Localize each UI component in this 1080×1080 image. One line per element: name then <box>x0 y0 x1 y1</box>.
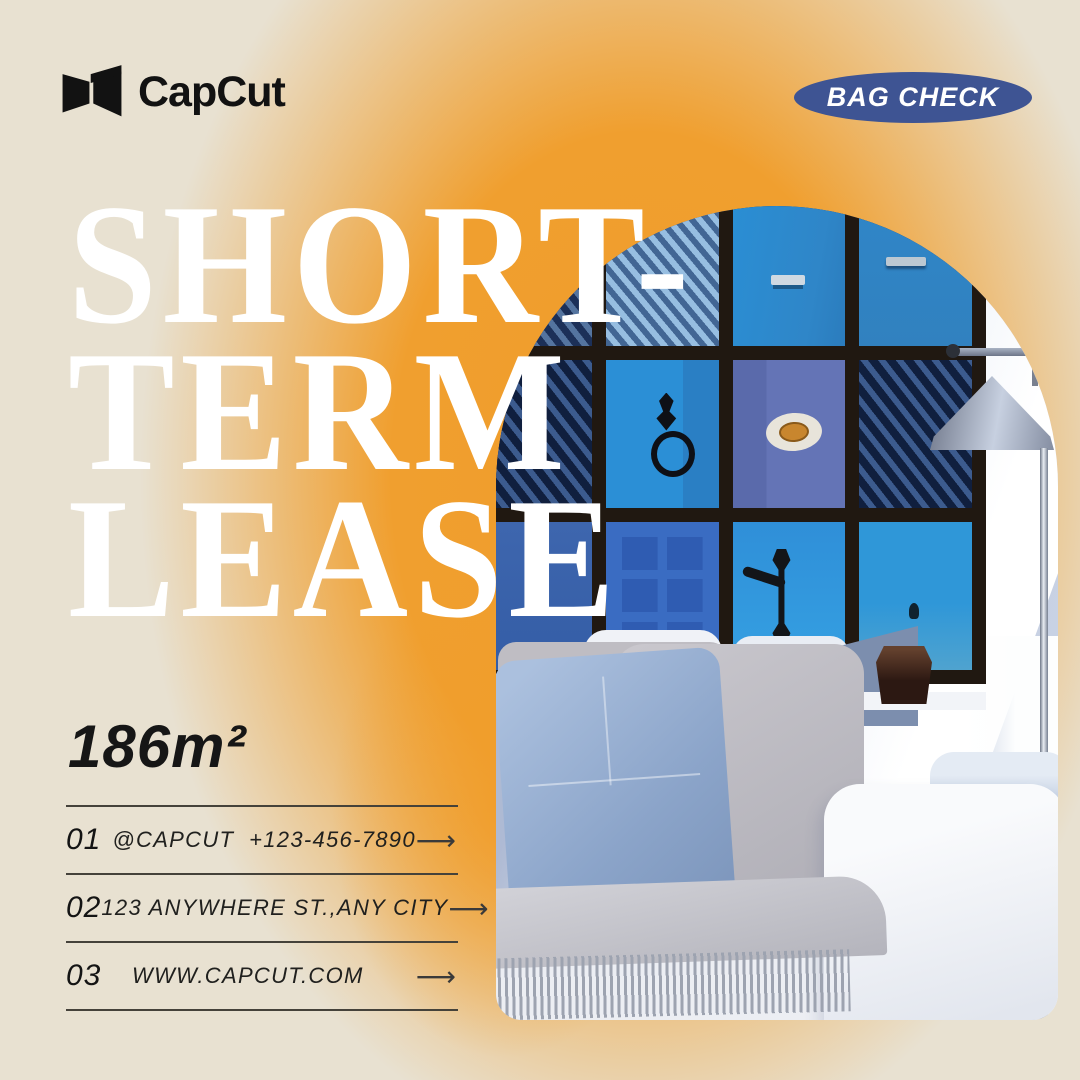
brand-name: CapCut <box>138 68 285 117</box>
headline: SHORT- TERM LEASE <box>68 192 695 633</box>
floor-lamp-counterweight <box>946 344 960 358</box>
door-tile <box>733 206 846 346</box>
brass-escutcheon <box>765 411 824 453</box>
capcut-logo[interactable]: CapCut <box>60 62 285 122</box>
contact-list: 01 @CAPCUT +123-456-7890 ⟶ 02 123 ANYWHE… <box>66 805 458 1011</box>
contact-row-3[interactable]: 03 WWW.CAPCUT.COM ⟶ <box>66 941 458 1009</box>
row-text: 123 ANYWHERE ST.,ANY CITY <box>101 895 448 921</box>
contact-row-2[interactable]: 02 123 ANYWHERE ST.,ANY CITY ⟶ <box>66 873 458 941</box>
row-text: @CAPCUT +123-456-7890 <box>112 827 415 853</box>
capcut-logo-icon <box>60 62 124 122</box>
door-tile <box>733 360 846 508</box>
dark-vase <box>876 646 932 704</box>
row-number: 01 <box>66 823 112 857</box>
badge-label: BAG CHECK <box>827 82 1000 113</box>
arrow-right-icon[interactable]: ⟶ <box>416 824 458 857</box>
floor-lamp-arm <box>954 348 1058 356</box>
throw-fringe <box>496 949 851 1020</box>
headline-line-3: LEASE <box>68 486 695 633</box>
bag-check-badge[interactable]: BAG CHECK <box>794 72 1032 123</box>
door-lever-icon <box>766 549 796 645</box>
door-tile <box>859 206 972 346</box>
row-number: 02 <box>66 891 101 925</box>
area-label: 186m² <box>68 712 246 781</box>
row-text: WWW.CAPCUT.COM <box>132 963 416 989</box>
arrow-right-icon[interactable]: ⟶ <box>449 892 491 925</box>
floor-lamp-stem <box>1032 354 1038 386</box>
door-handle <box>886 257 926 266</box>
mail-slot <box>771 275 805 285</box>
poster-canvas: SHORT- TERM LEASE CapCut BAG CHECK 186m²… <box>0 0 1080 1080</box>
row-number: 03 <box>66 959 132 993</box>
contact-row-1[interactable]: 01 @CAPCUT +123-456-7890 ⟶ <box>66 805 458 873</box>
arrow-right-icon[interactable]: ⟶ <box>416 960 458 993</box>
keyhole-icon <box>909 603 919 619</box>
